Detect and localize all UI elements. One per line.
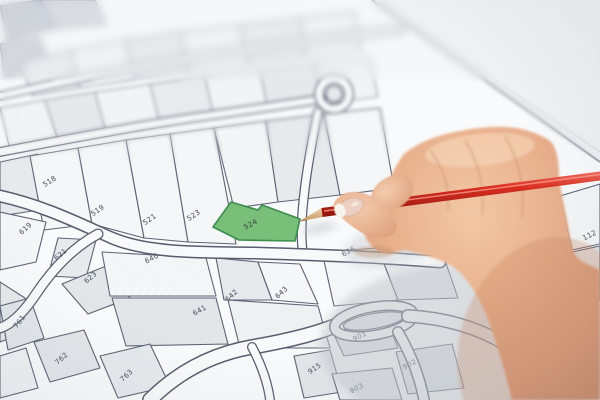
pencil-wood-cone <box>299 208 323 222</box>
photo-cadastral-map-scene: 5185195215235246196216236406416426436261… <box>0 0 600 400</box>
hand-holding-pencil <box>0 0 600 400</box>
